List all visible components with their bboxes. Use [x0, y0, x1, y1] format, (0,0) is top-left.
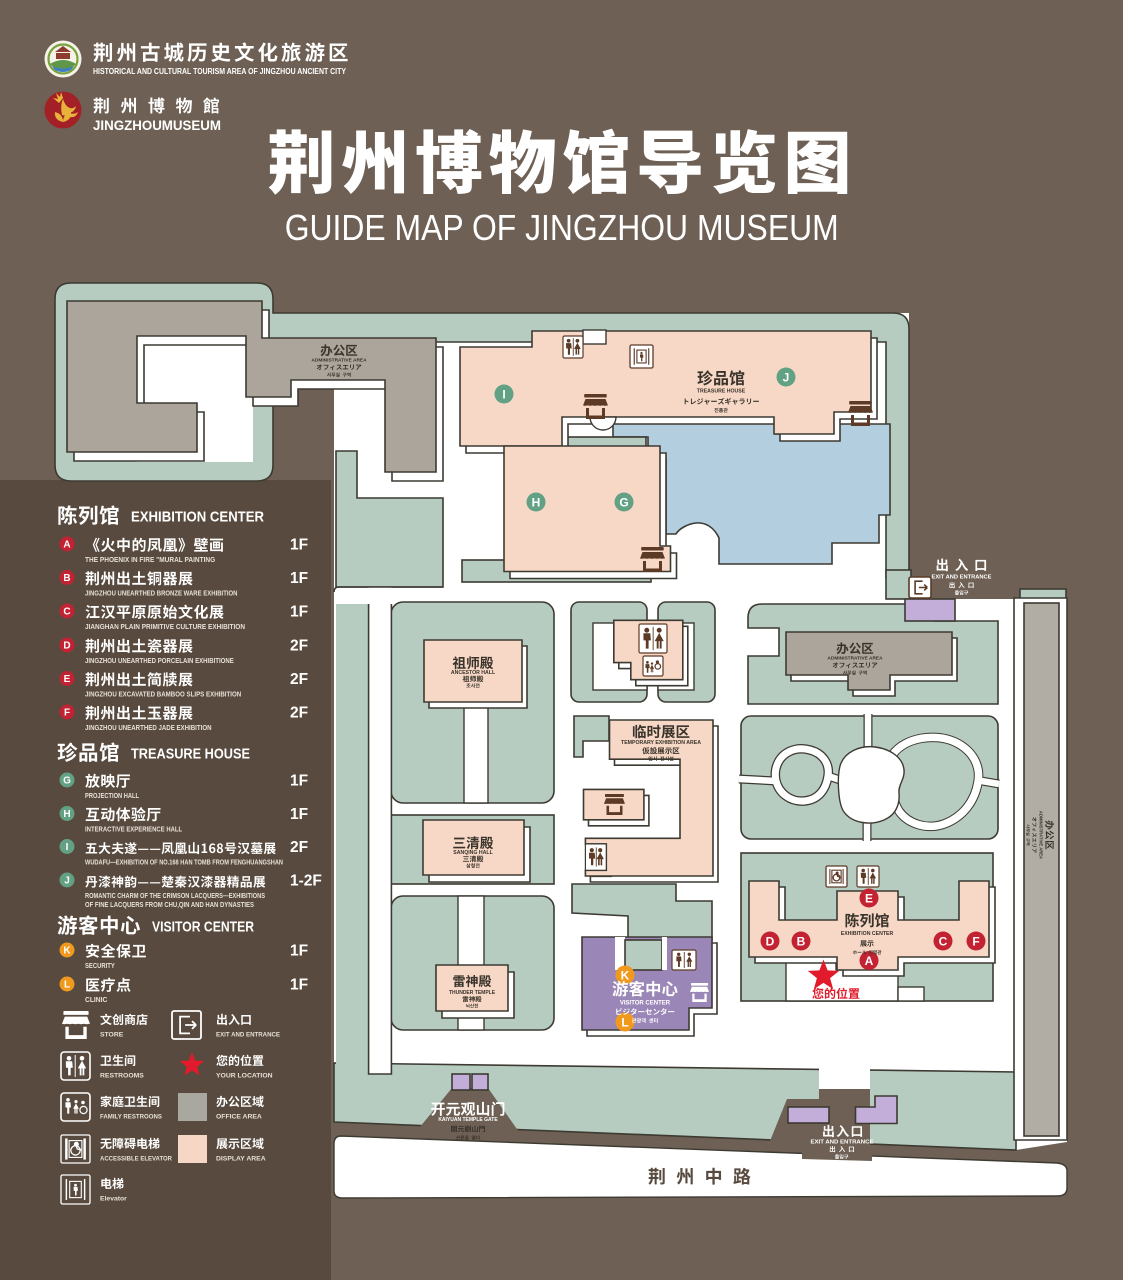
svg-text:2F: 2F [290, 671, 308, 688]
svg-text:1F: 1F [290, 806, 308, 823]
svg-text:DISPLAY AREA: DISPLAY AREA [216, 1156, 266, 1163]
svg-text:A: A [63, 540, 70, 551]
svg-text:HISTORICAL AND CULTURAL TOURIS: HISTORICAL AND CULTURAL TOURISM AREA OF … [93, 66, 346, 76]
svg-text:L: L [621, 1015, 628, 1029]
svg-text:2F: 2F [290, 638, 308, 655]
svg-text:RESTROOMS: RESTROOMS [100, 1073, 144, 1080]
svg-text:ADMINISTRATIVE AREA: ADMINISTRATIVE AREA [827, 656, 883, 662]
svg-text:VISITOR CENTER: VISITOR CENTER [152, 919, 254, 936]
svg-text:D: D [766, 934, 775, 948]
svg-text:KAIYUAN TEMPLE GATE: KAIYUAN TEMPLE GATE [438, 1117, 498, 1123]
svg-text:F: F [64, 708, 70, 719]
svg-text:YOUR LOCATION: YOUR LOCATION [216, 1073, 273, 1080]
svg-text:J: J [783, 370, 790, 384]
svg-text:H: H [532, 495, 541, 509]
svg-text:JIANGHAN PLAIN PRIMITIVE CULTU: JIANGHAN PLAIN PRIMITIVE CULTURE EXHIBIT… [85, 622, 245, 631]
svg-text:C: C [939, 934, 948, 948]
svg-text:TREASURE HOUSE: TREASURE HOUSE [131, 746, 250, 763]
svg-text:ACCESSIBLE ELEVATOR: ACCESSIBLE ELEVATOR [100, 1156, 172, 1163]
svg-text:1F: 1F [290, 570, 308, 587]
svg-text:B: B [63, 573, 70, 584]
svg-text:OFFICE AREA: OFFICE AREA [216, 1114, 262, 1121]
svg-text:1F: 1F [290, 943, 308, 960]
svg-text:I: I [502, 387, 505, 401]
svg-text:B: B [797, 934, 806, 948]
svg-text:SECURITY: SECURITY [85, 961, 115, 970]
svg-text:THE PHOENIX IN FIRE "MURAL PAI: THE PHOENIX IN FIRE "MURAL PAINTING [85, 555, 215, 564]
svg-text:VISITOR CENTER: VISITOR CENTER [620, 1001, 671, 1007]
svg-text:EXHIBITION CENTER: EXHIBITION CENTER [841, 931, 894, 937]
svg-text:I: I [66, 842, 69, 853]
svg-text:1F: 1F [290, 604, 308, 621]
svg-text:J: J [64, 876, 70, 887]
svg-text:A: A [865, 954, 874, 968]
svg-text:JINGZHOU UNEARTHED BRONZE WARE: JINGZHOU UNEARTHED BRONZE WARE EXHIBITIO… [85, 589, 238, 598]
svg-text:2F: 2F [290, 705, 308, 722]
svg-text:1-2F: 1-2F [290, 873, 322, 890]
svg-text:1F: 1F [290, 537, 308, 554]
svg-text:SANQING HALL: SANQING HALL [453, 850, 493, 856]
svg-text:1F: 1F [290, 977, 308, 994]
svg-text:H: H [63, 809, 70, 820]
svg-text:EXHIBITION CENTER: EXHIBITION CENTER [131, 509, 264, 526]
svg-text:OF FINE LACQUERS FROM CHU,QIN: OF FINE LACQUERS FROM CHU,QIN AND HAN DY… [85, 900, 254, 909]
svg-text:TEMPORARY EXHIBITION AREA: TEMPORARY EXHIBITION AREA [621, 740, 701, 746]
svg-text:JINGZHOUMUSEUM: JINGZHOUMUSEUM [93, 118, 221, 133]
svg-text:JINGZHOU EXCAVATED BAMBOO SLIP: JINGZHOU EXCAVATED BAMBOO SLIPS EXHIBITI… [85, 690, 241, 699]
svg-text:EXIT AND ENTRANCE: EXIT AND ENTRANCE [811, 1139, 875, 1145]
svg-text:INTERACTIVE EXPERIENCE HALL: INTERACTIVE EXPERIENCE HALL [85, 825, 183, 834]
svg-text:STORE: STORE [100, 1032, 124, 1039]
svg-text:D: D [63, 641, 70, 652]
svg-text:GUIDE MAP OF JINGZHOU MUSEUM: GUIDE MAP OF JINGZHOU MUSEUM [285, 207, 839, 248]
svg-text:K: K [63, 946, 71, 957]
svg-text:ANCESTOR HALL: ANCESTOR HALL [451, 670, 496, 676]
svg-text:JINGZHOU UNEARTHED PORCELAIN E: JINGZHOU UNEARTHED PORCELAIN EXHIBITIONE [85, 656, 234, 665]
svg-text:E: E [865, 891, 873, 905]
svg-text:E: E [64, 674, 71, 685]
svg-text:C: C [63, 607, 70, 618]
svg-text:THUNDER TEMPLE: THUNDER TEMPLE [449, 990, 496, 996]
svg-text:WUDAFU—EXHIBITION OF NO.168 HA: WUDAFU—EXHIBITION OF NO.168 HAN TOMB FRO… [85, 858, 283, 867]
svg-text:ADMINISTRATIVE AREA: ADMINISTRATIVE AREA [311, 358, 367, 364]
svg-text:1F: 1F [290, 773, 308, 790]
svg-text:ROMANTIC CHARM OF THE CRIMSON: ROMANTIC CHARM OF THE CRIMSON LACQUERS—E… [85, 891, 265, 900]
svg-text:L: L [64, 980, 70, 991]
svg-text:EXIT AND ENTRANCE: EXIT AND ENTRANCE [216, 1032, 280, 1039]
svg-text:FAMILY RESTROONS: FAMILY RESTROONS [100, 1114, 162, 1121]
svg-text:TREASURE HOUSE: TREASURE HOUSE [697, 389, 746, 395]
svg-text:2F: 2F [290, 839, 308, 856]
svg-text:K: K [621, 968, 630, 982]
svg-text:CLINIC: CLINIC [85, 995, 108, 1004]
svg-text:PROJECTION HALL: PROJECTION HALL [85, 791, 139, 800]
svg-text:G: G [63, 776, 71, 787]
svg-text:ADMINISTRATIVE AREA: ADMINISTRATIVE AREA [1039, 811, 1044, 859]
svg-text:JINGZHOU UNEARTHED JADE EXHIBI: JINGZHOU UNEARTHED JADE EXHIBITION [85, 723, 212, 732]
svg-text:Elevator: Elevator [100, 1196, 127, 1203]
svg-text:G: G [619, 495, 628, 509]
svg-text:EXIT AND ENTRANCE: EXIT AND ENTRANCE [932, 575, 993, 581]
svg-text:F: F [972, 934, 979, 948]
